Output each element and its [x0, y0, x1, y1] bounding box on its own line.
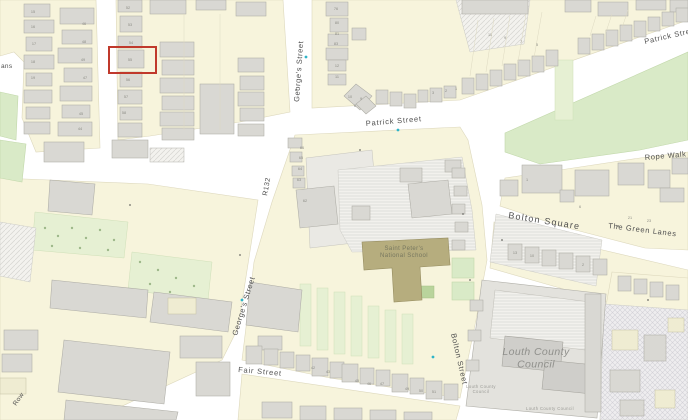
house-number: 49	[405, 387, 409, 391]
house-number: 49	[81, 58, 85, 62]
school-green-1	[452, 258, 474, 278]
house-number: 9	[504, 36, 506, 40]
school-hall	[408, 180, 452, 218]
house-number: 81	[335, 32, 339, 36]
house-number: 44	[78, 127, 82, 131]
house-number: 51	[432, 390, 436, 394]
house-number: 83	[334, 42, 338, 46]
school-label: Saint Peter's	[384, 246, 423, 252]
house-number: 21	[628, 216, 632, 220]
council-label-main: Council	[517, 359, 555, 371]
school-label: National School	[380, 253, 428, 259]
house-number: 8	[354, 104, 356, 108]
house-number: 2	[445, 89, 447, 93]
house-number: 58	[122, 111, 126, 115]
building-62	[296, 186, 338, 228]
council-east-wing	[585, 294, 601, 412]
house-number: 63	[297, 178, 301, 182]
house-number: 52	[126, 6, 130, 10]
house-number: 3	[432, 91, 434, 95]
council-label-small-1: Council	[473, 389, 490, 394]
green-patch-left	[0, 140, 26, 182]
house-number: 53	[128, 23, 132, 27]
house-number: 48	[82, 40, 86, 44]
hatch-yard-left	[0, 222, 36, 282]
house-number: 10	[348, 95, 352, 99]
house-number: 56	[126, 78, 130, 82]
house-number: 19	[31, 76, 35, 80]
house-number: 46	[367, 382, 371, 386]
house-number: 15	[31, 10, 35, 14]
map-canvas[interactable]: George's StreetPatrick StreetPatrick Str…	[0, 0, 688, 420]
green-patch-top-left	[0, 92, 18, 140]
garden-strip-ne	[555, 60, 573, 120]
house-number: 47	[380, 382, 384, 386]
house-number: 46	[82, 22, 86, 26]
house-number: 9	[360, 97, 362, 101]
street-label-patrick-street-mid: Patrick Street	[365, 114, 422, 128]
street-label-georges-street-n: George's Street	[292, 40, 305, 102]
house-number: 18	[31, 60, 35, 64]
house-number: 17	[32, 42, 36, 46]
house-number: 47	[83, 76, 87, 80]
house-number: 12	[335, 64, 339, 68]
house-number: 66	[300, 146, 304, 150]
house-number: 45	[355, 379, 359, 383]
school-green-2	[452, 282, 474, 300]
council-label-main: Louth County	[502, 346, 570, 358]
house-number: 7	[520, 40, 522, 44]
house-number: 62	[303, 199, 307, 203]
house-number: 16	[31, 25, 35, 29]
survey-marker	[397, 129, 400, 132]
house-number: 45	[79, 112, 83, 116]
street-label-r132: R132	[262, 177, 272, 196]
house-number: 50	[419, 389, 423, 393]
street-map[interactable]: George's StreetPatrick StreetPatrick Str…	[0, 0, 688, 420]
house-number: 55	[128, 58, 132, 62]
house-number: 11	[335, 75, 339, 79]
house-number: 11	[488, 33, 492, 37]
survey-marker	[305, 56, 308, 59]
house-number: 1	[455, 87, 457, 91]
house-number: 64	[298, 167, 302, 171]
council-label-small-2: Louth County Council	[526, 406, 574, 411]
house-number: 76	[334, 7, 338, 11]
house-number: 42	[311, 366, 315, 370]
house-number: 43	[326, 370, 330, 374]
house-number: 1	[526, 178, 528, 182]
street-label-ans-partial: ans	[1, 63, 13, 70]
house-number: 6	[579, 205, 581, 209]
house-number: 10	[530, 254, 534, 258]
house-number: 57	[124, 95, 128, 99]
house-number: 23	[647, 219, 651, 223]
house-number: 5	[536, 43, 538, 47]
survey-marker	[432, 356, 435, 359]
house-number: 65	[299, 156, 303, 160]
large-building-top-left	[200, 84, 234, 134]
house-number: 54	[129, 41, 133, 45]
house-number: 80	[335, 21, 339, 25]
house-number: 2	[582, 263, 584, 267]
house-number: 13	[513, 251, 517, 255]
